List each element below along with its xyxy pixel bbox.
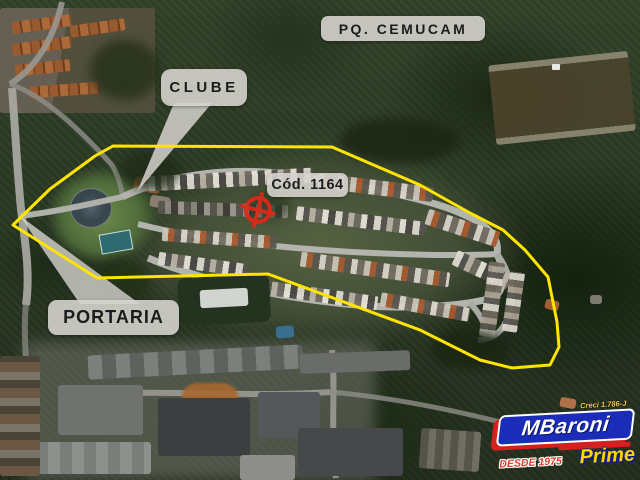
warehouse — [58, 385, 143, 435]
factory — [158, 398, 250, 456]
pool — [276, 325, 295, 339]
prime-label: Prime — [579, 443, 636, 469]
house-cluster — [419, 428, 482, 472]
park-label: PQ. CEMUCAM — [321, 16, 485, 41]
brand-name: MBaroni — [521, 413, 611, 441]
tree-cluster — [340, 118, 460, 163]
clube-label: CLUBE — [161, 69, 247, 106]
park-building — [200, 288, 249, 308]
brand-box: MBaroni — [496, 408, 636, 446]
warehouse — [300, 350, 411, 374]
aerial-map: PQ. CEMUCAM CLUBE Cód. 1164 PORTARIA Cre… — [0, 0, 640, 480]
tree-cluster — [90, 40, 160, 100]
since-year: DESDE 1975 — [499, 455, 562, 470]
open-field — [488, 51, 636, 145]
field-structure — [552, 64, 560, 70]
warehouse — [36, 442, 151, 474]
portaria-label: PORTARIA — [48, 300, 179, 335]
listing-code-text: Cód. 1164 — [271, 177, 343, 193]
warehouse — [298, 428, 403, 476]
tree-cluster — [120, 150, 180, 190]
warehouse — [240, 455, 295, 480]
house — [590, 295, 602, 304]
tree-cluster — [430, 330, 510, 370]
agency-logo: Creci 1.786-J MBaroni DESDE 1975 Prime — [494, 398, 637, 473]
clube-label-text: CLUBE — [169, 79, 238, 96]
portaria-label-text: PORTARIA — [63, 307, 164, 328]
lake — [70, 188, 112, 228]
listing-code-label: Cód. 1164 — [267, 173, 348, 197]
urban-strip — [0, 356, 40, 476]
park-label-text: PQ. CEMUCAM — [339, 21, 468, 37]
